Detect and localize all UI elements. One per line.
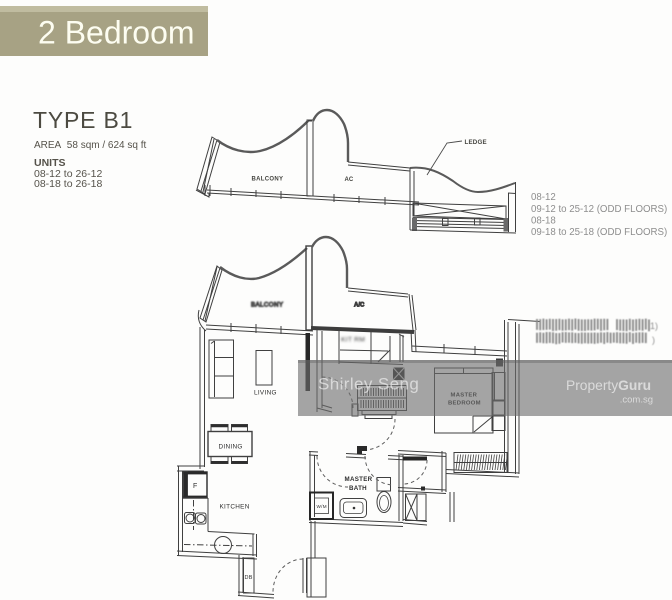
- svg-text:W/M: W/M: [317, 504, 327, 509]
- svg-text:1): 1): [650, 321, 658, 331]
- svg-text:): ): [652, 335, 655, 345]
- svg-text:LEDGE: LEDGE: [465, 139, 487, 146]
- svg-text:AC: AC: [345, 177, 354, 183]
- svg-text:08-12: 08-12: [531, 192, 556, 203]
- svg-text:08-18 to 26-18: 08-18 to 26-18: [34, 178, 102, 190]
- svg-text:TYPE B1: TYPE B1: [33, 107, 133, 133]
- svg-text:KITCHEN: KITCHEN: [220, 504, 250, 511]
- svg-text:09-18 to 25-18 (ODD FLOORS): 09-18 to 25-18 (ODD FLOORS): [531, 227, 667, 238]
- svg-text:LIVING: LIVING: [254, 390, 277, 397]
- svg-text:BALCONY: BALCONY: [251, 302, 283, 309]
- svg-text:BATH: BATH: [349, 485, 367, 492]
- svg-text:08-18: 08-18: [531, 216, 556, 227]
- svg-text:A/C: A/C: [354, 303, 365, 309]
- svg-text:PropertyGuru: PropertyGuru: [566, 378, 651, 393]
- svg-text:2 Bedroom: 2 Bedroom: [38, 15, 195, 51]
- svg-text:BALCONY: BALCONY: [252, 177, 284, 183]
- svg-text:.com.sg: .com.sg: [620, 395, 653, 406]
- svg-text:DINING: DINING: [219, 444, 243, 451]
- svg-text:DB: DB: [245, 575, 253, 581]
- svg-text:KIT RM: KIT RM: [341, 337, 365, 344]
- svg-text:09-12 to 25-12 (ODD FLOORS): 09-12 to 25-12 (ODD FLOORS): [531, 204, 667, 215]
- svg-text:AREA 58 sqm / 624 sq ft: AREA 58 sqm / 624 sq ft: [34, 140, 146, 151]
- svg-text:MASTER: MASTER: [345, 476, 373, 483]
- svg-text:F: F: [193, 483, 198, 490]
- svg-text:Shirley Seng: Shirley Seng: [318, 375, 419, 394]
